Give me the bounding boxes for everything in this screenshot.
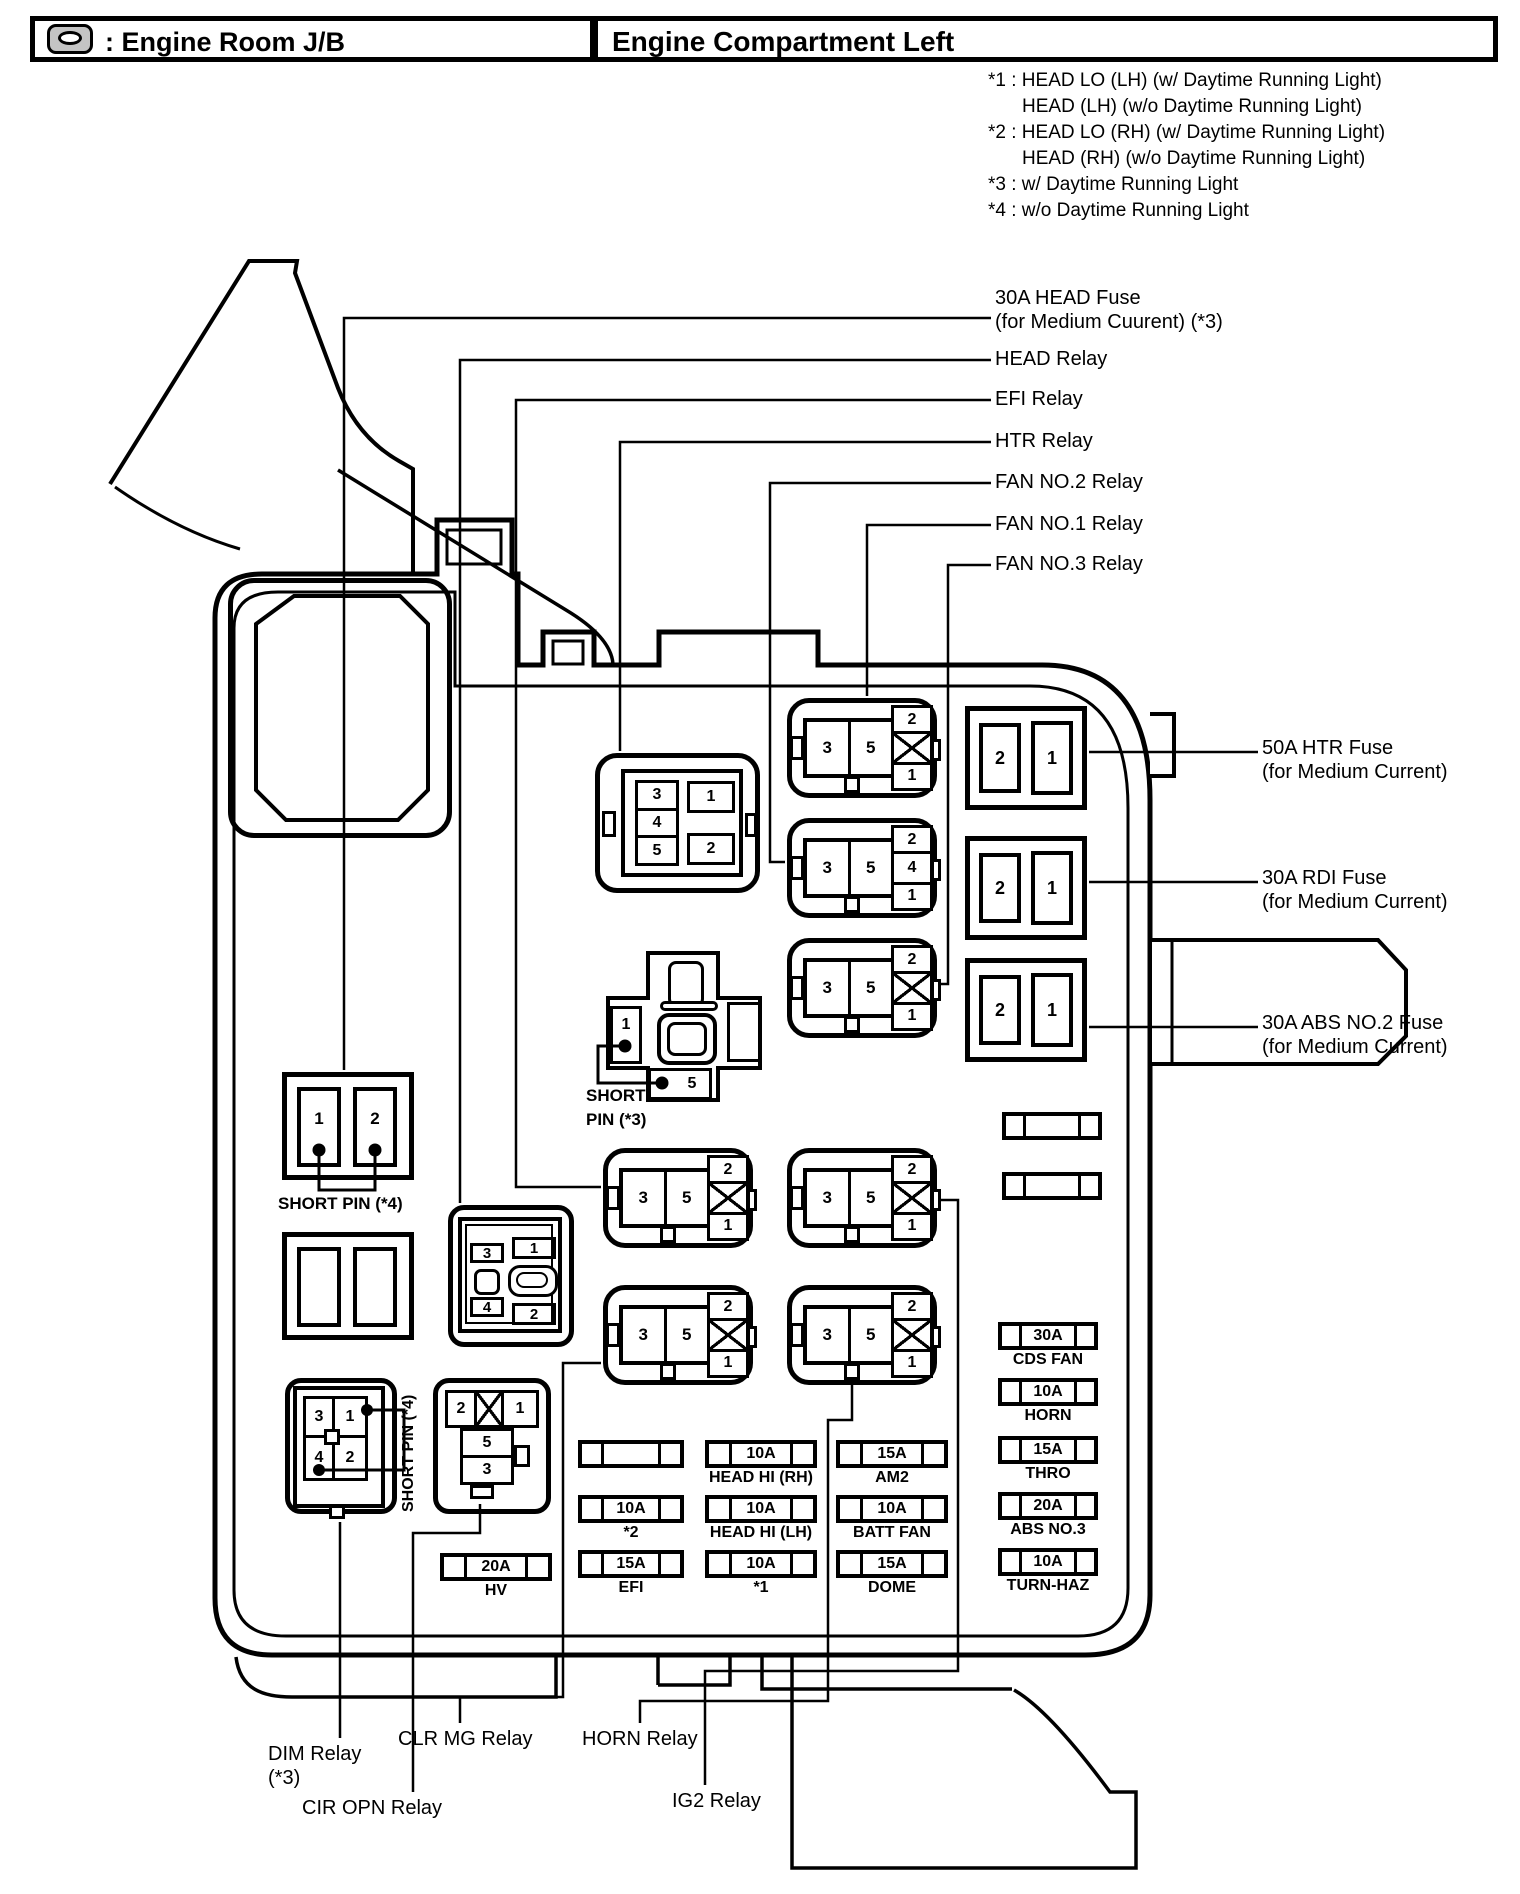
head-relay-pin-1: 1	[512, 1237, 556, 1259]
dim-relay-short-pin-label: SHORT PIN (*4)	[400, 1374, 420, 1512]
ig2-relay: 3521	[787, 1148, 937, 1248]
short-pin-4-block: 1 2	[282, 1072, 414, 1180]
hv-fuse-amp: 20A	[464, 1557, 529, 1577]
short-pin-3-center-inner	[667, 1022, 707, 1056]
horn-relay-pin-5: 5	[848, 1309, 892, 1361]
head-relay-callout-label: HEAD Relay	[995, 347, 1107, 371]
blank-strip-lower-cap-right	[1081, 1176, 1098, 1196]
ig2-relay-callout-label: IG2 Relay	[672, 1789, 761, 1813]
batt-fan-fuse: 10A	[836, 1495, 948, 1523]
htr-relay-pin-2: 2	[687, 833, 735, 865]
star1-fuse-label: *1	[691, 1579, 831, 1597]
page-title: Engine Compartment Left	[612, 26, 954, 58]
htr-relay-plate: 3 4 5 1 2	[621, 769, 743, 877]
horn-fuse-amp: 10A	[1019, 1382, 1076, 1402]
diagram-line-art	[0, 0, 1520, 1894]
cir-opn-relay-callout-label-line: CIR OPN Relay	[302, 1796, 442, 1820]
blank-fuse-a	[578, 1440, 684, 1468]
fan-no1-relay-pin-5: 5	[848, 722, 892, 774]
bottom-left-foot	[236, 1657, 556, 1697]
htr-relay-right-tab	[745, 813, 757, 837]
cir-opn-relay-right-tab	[514, 1445, 530, 1467]
thro-fuse-cap-left	[1002, 1440, 1019, 1460]
short-pin-3-cell-1: 1	[610, 1006, 642, 1064]
bottom-right-bracket	[792, 1657, 1136, 1868]
am2-fuse-label: AM2	[822, 1469, 962, 1487]
ig2-relay-bottom-tab	[844, 1226, 860, 1243]
horn-relay-pin-plate: 35	[803, 1305, 895, 1365]
dim-relay-callout-label: DIM Relay(*3)	[268, 1742, 361, 1790]
clr-mg-relay-right-tab	[747, 1326, 757, 1348]
ig2-relay-pin-1: 1	[894, 1212, 930, 1238]
fan-no2-relay-pin-5: 5	[848, 842, 892, 894]
fan-no2-relay-pin-plate: 35	[803, 838, 895, 898]
thro-fuse-cap-right	[1077, 1440, 1094, 1460]
fan-no2-relay-right-tab	[931, 859, 941, 881]
cir-opn-relay-x-cell	[474, 1390, 504, 1428]
top-left-bracket-inner-curve	[115, 487, 240, 549]
head-fuse-30a-callout-label: 30A HEAD Fuse(for Medium Cuurent) (*3)	[995, 286, 1223, 334]
header-legend-box: : Engine Room J/B	[30, 16, 595, 62]
efi-relay-pin-plate: 35	[619, 1168, 711, 1228]
fan-no1-relay-left-tab	[790, 736, 804, 760]
rdi-30a-fuse: 21	[965, 836, 1087, 940]
header-left-title: : Engine Room J/B	[105, 27, 345, 58]
fan-no1-relay-callout-line	[867, 525, 991, 696]
fan-no2-relay-callout-label: FAN NO.2 Relay	[995, 470, 1143, 494]
fan-no1-relay-right-tab	[931, 739, 941, 761]
htr-relay-callout-label: HTR Relay	[995, 429, 1093, 453]
footnote-1a: *1 : HEAD LO (LH) (w/ Daytime Running Li…	[988, 70, 1382, 92]
hv-fuse-cap-right	[528, 1557, 548, 1577]
efi-fuse-label: EFI	[564, 1579, 698, 1597]
turn-haz-fuse-cap-left	[1002, 1552, 1019, 1572]
short-pin-3-label-line1: SHORT	[586, 1086, 646, 1106]
turn-haz-fuse-amp: 10A	[1019, 1552, 1076, 1572]
short-pin-3-cell-5: 5	[648, 1068, 712, 1100]
efi-relay-left-tab	[606, 1186, 620, 1210]
efi-relay-pin-2: 2	[710, 1158, 746, 1181]
ig2-relay-right-tab	[931, 1189, 941, 1211]
dome-fuse-amp: 15A	[860, 1554, 925, 1574]
blank-fuse-a-amp	[601, 1444, 662, 1464]
dome-fuse: 15A	[836, 1550, 948, 1578]
fan-no2-relay: 35241	[787, 818, 937, 918]
htr-relay-pin-4: 4	[638, 808, 676, 836]
clr-mg-relay-callout-label-line: CLR MG Relay	[398, 1727, 532, 1751]
abs-no3-fuse-label: ABS NO.3	[984, 1521, 1112, 1539]
abs-no2-30a-fuse: 21	[965, 958, 1087, 1062]
fan-no2-relay-pin-1: 1	[894, 882, 930, 908]
ig2-relay-pin-3: 3	[807, 1172, 848, 1224]
empty-fuse-cell	[353, 1247, 397, 1327]
horn-relay-pin-3: 3	[807, 1309, 848, 1361]
fan-no3-relay-x-cell	[894, 971, 930, 1001]
short-pin-3-center	[657, 1013, 717, 1065]
efi-relay-pin-5: 5	[664, 1172, 708, 1224]
star1-fuse-cap-right	[793, 1554, 813, 1574]
fan-no1-relay-pin-stack: 21	[891, 705, 933, 791]
short-pin-4-cell-2: 2	[353, 1087, 397, 1167]
clr-mg-relay-left-tab	[606, 1323, 620, 1347]
footnote-3: *3 : w/ Daytime Running Light	[988, 174, 1238, 196]
horn-relay-left-tab	[790, 1323, 804, 1347]
head-hi-lh-fuse-cap-right	[793, 1499, 813, 1519]
cds-fan-fuse-amp: 30A	[1019, 1326, 1076, 1346]
efi-relay-x-cell	[710, 1181, 746, 1211]
fan-no2-relay-bottom-tab	[844, 896, 860, 913]
fan-no3-relay-pin-1: 1	[894, 1002, 930, 1028]
head-relay-pin-2: 2	[512, 1303, 556, 1325]
head-hi-lh-fuse-amp: 10A	[729, 1499, 794, 1519]
horn-fuse-cap-left	[1002, 1382, 1019, 1402]
ig2-relay-left-tab	[790, 1186, 804, 1210]
rdi-fuse-30a-callout-label-line: (for Medium Current)	[1262, 890, 1448, 914]
star2-fuse-cap-left	[582, 1499, 601, 1519]
clr-mg-relay-pin-1: 1	[710, 1349, 746, 1375]
footnote-1b: HEAD (LH) (w/o Daytime Running Light)	[1022, 96, 1362, 118]
htr-fuse-50a-callout-label-line: 50A HTR Fuse	[1262, 736, 1448, 760]
abs-no3-fuse-cap-left	[1002, 1496, 1019, 1516]
blank-fuse-a-cap-left	[582, 1444, 601, 1464]
efi-relay-pin-1: 1	[710, 1212, 746, 1238]
clr-mg-relay-pin-stack: 21	[707, 1292, 749, 1378]
blank-strip-upper	[1002, 1112, 1102, 1140]
am2-fuse-cap-left	[840, 1444, 860, 1464]
engine-room-jb-icon	[47, 24, 93, 54]
short-pin-3-label-line2: PIN (*3)	[586, 1110, 646, 1130]
head-relay-pin-3: 3	[470, 1243, 504, 1263]
efi-relay-pin-3: 3	[623, 1172, 664, 1224]
abs-no3-fuse: 20A	[998, 1492, 1098, 1520]
clr-mg-relay-pin-3: 3	[623, 1309, 664, 1361]
star2-fuse-label: *2	[564, 1524, 698, 1542]
head-hi-rh-fuse: 10A	[705, 1440, 817, 1468]
fan-no3-relay: 3521	[787, 938, 937, 1038]
thro-fuse-label: THRO	[984, 1465, 1112, 1483]
fan-no3-relay-pin-2: 2	[894, 948, 930, 971]
fan-no1-relay: 3521	[787, 698, 937, 798]
clr-mg-relay: 3521	[603, 1285, 753, 1385]
fan-no2-relay-pin-2: 2	[894, 828, 930, 851]
htr-relay-pin-3: 3	[638, 783, 676, 808]
fan-no2-relay-callout-label-line: FAN NO.2 Relay	[995, 470, 1143, 494]
hv-fuse-label: HV	[426, 1582, 566, 1600]
turn-haz-fuse-label: TURN-HAZ	[984, 1577, 1112, 1595]
footnote-2b: HEAD (RH) (w/o Daytime Running Light)	[1022, 148, 1365, 170]
htr-relay-pin-1: 1	[687, 781, 735, 813]
dim-relay-bottom-tab	[329, 1505, 345, 1519]
clr-mg-relay-callout-label: CLR MG Relay	[398, 1727, 532, 1751]
horn-fuse-cap-right	[1077, 1382, 1094, 1402]
fan-no2-relay-pin-4: 4	[894, 851, 930, 881]
fan-no1-relay-pin-2: 2	[894, 708, 930, 731]
horn-fuse: 10A	[998, 1378, 1098, 1406]
blank-fuse-a-cap-right	[661, 1444, 680, 1464]
fan-no1-relay-pin-plate: 35	[803, 718, 895, 778]
bottom-tab-outline	[658, 1657, 730, 1685]
fan-no1-relay-callout-label: FAN NO.1 Relay	[995, 512, 1143, 536]
htr-50a-fuse: 21	[965, 706, 1087, 810]
fan-no2-relay-left-tab	[790, 856, 804, 880]
htr-fuse-50a-callout-label-line: (for Medium Current)	[1262, 760, 1448, 784]
horn-relay-x-cell	[894, 1318, 930, 1348]
fan-no2-relay-pin-stack: 241	[891, 825, 933, 911]
head-hi-rh-fuse-cap-left	[709, 1444, 729, 1464]
head-relay: 3 1 4 2	[448, 1205, 574, 1347]
head-relay-round-slot	[474, 1269, 500, 1295]
callout-lines-layer	[0, 0, 1520, 1894]
blank-strip-upper-cap-left	[1006, 1116, 1023, 1136]
cds-fan-fuse: 30A	[998, 1322, 1098, 1350]
star1-fuse-cap-left	[709, 1554, 729, 1574]
clr-mg-relay-bottom-tab	[660, 1363, 676, 1380]
fan-no3-relay-right-tab	[931, 979, 941, 1001]
head-fuse-30a-callout-label-line: (for Medium Cuurent) (*3)	[995, 310, 1223, 334]
efi-fuse-cap-right	[661, 1554, 680, 1574]
top-tab-inner	[447, 530, 501, 564]
ig2-relay-pin-plate: 35	[803, 1168, 895, 1228]
short-pin-4-cell-1: 1	[297, 1087, 341, 1167]
fan-no3-relay-pin-plate: 35	[803, 958, 895, 1018]
head-hi-lh-fuse-label: HEAD HI (LH)	[691, 1524, 831, 1542]
htr-relay: 3 4 5 1 2	[595, 753, 760, 893]
hv-fuse: 20A	[440, 1553, 552, 1581]
cds-fan-fuse-cap-left	[1002, 1326, 1019, 1346]
ig2-relay-pin-stack: 21	[891, 1155, 933, 1241]
am2-fuse-cap-right	[924, 1444, 944, 1464]
bottom-step-outline	[762, 1657, 1012, 1689]
head-hi-rh-fuse-amp: 10A	[729, 1444, 794, 1464]
head-relay-callout-label-line: HEAD Relay	[995, 347, 1107, 371]
ig2-relay-x-cell	[894, 1181, 930, 1211]
dim-relay: 3 1 4 2	[285, 1378, 397, 1514]
dim-relay-center-key	[324, 1429, 340, 1445]
batt-fan-fuse-cap-left	[840, 1499, 860, 1519]
htr-50a-fuse-cell-2: 2	[979, 723, 1021, 793]
cir-opn-relay-pin-5: 5	[460, 1428, 514, 1458]
fuse-box-diagram-page: : Engine Room J/B Engine Compartment Lef…	[0, 0, 1520, 1894]
turn-haz-fuse: 10A	[998, 1548, 1098, 1576]
horn-relay-callout-label: HORN Relay	[582, 1727, 698, 1751]
fan-no1-relay-pin-3: 3	[807, 722, 848, 774]
turn-haz-fuse-cap-right	[1077, 1552, 1094, 1572]
ig2-relay-callout-label-line: IG2 Relay	[672, 1789, 761, 1813]
abs-no2-fuse-30a-callout-label-line: 30A ABS NO.2 Fuse	[1262, 1011, 1448, 1035]
empty-connector-socket	[228, 578, 452, 838]
dome-fuse-cap-right	[924, 1554, 944, 1574]
top-tab-small-inner	[553, 641, 583, 664]
short-pin-3-pin-1: 1	[613, 1009, 639, 1041]
blank-strip-lower-cap-left	[1006, 1176, 1023, 1196]
htr-50a-fuse-cell-1: 1	[1031, 721, 1073, 795]
dim-relay-callout-label-line: DIM Relay	[268, 1742, 361, 1766]
horn-relay: 3521	[787, 1285, 937, 1385]
engine-room-jb-icon-oval	[58, 31, 82, 45]
clr-mg-relay-pin-plate: 35	[619, 1305, 711, 1365]
horn-relay-bottom-tab	[844, 1363, 860, 1380]
abs-no2-30a-fuse-cell-2: 2	[979, 975, 1021, 1045]
efi-relay-pin-stack: 21	[707, 1155, 749, 1241]
htr-relay-pin-column: 3 4 5	[635, 780, 679, 866]
star2-fuse: 10A	[578, 1495, 684, 1523]
fan-no1-relay-pin-1: 1	[894, 762, 930, 788]
blank-strip-upper-amp	[1023, 1116, 1080, 1136]
fan-no3-relay-pin-5: 5	[848, 962, 892, 1014]
abs-no2-fuse-30a-callout-label-line: (for Medium Current)	[1262, 1035, 1448, 1059]
batt-fan-fuse-label: BATT FAN	[822, 1524, 962, 1542]
fan-no3-relay-callout-label: FAN NO.3 Relay	[995, 552, 1143, 576]
cir-opn-relay: 2 1 5 3	[433, 1378, 551, 1514]
fan-no1-relay-callout-label-line: FAN NO.1 Relay	[995, 512, 1143, 536]
horn-relay-pin-1: 1	[894, 1349, 930, 1375]
rdi-fuse-30a-callout-label: 30A RDI Fuse(for Medium Current)	[1262, 866, 1448, 914]
cir-opn-relay-pin-2: 2	[445, 1390, 477, 1428]
clr-mg-relay-pin-2: 2	[710, 1295, 746, 1318]
head-relay-wide-slot-inner	[516, 1272, 548, 1288]
fan-no3-relay-bottom-tab	[844, 1016, 860, 1033]
fan-no1-relay-x-cell	[894, 731, 930, 761]
horn-relay-right-tab	[931, 1326, 941, 1348]
abs-no2-30a-fuse-cell-1: 1	[1031, 973, 1073, 1047]
blank-strip-lower	[1002, 1172, 1102, 1200]
am2-fuse: 15A	[836, 1440, 948, 1468]
htr-relay-left-tab	[602, 811, 616, 837]
cir-opn-relay-callout-label: CIR OPN Relay	[302, 1796, 442, 1820]
head-hi-lh-fuse-cap-left	[709, 1499, 729, 1519]
blank-strip-upper-cap-right	[1081, 1116, 1098, 1136]
short-pin-3-pin-5: 5	[677, 1071, 707, 1097]
htr-fuse-50a-callout-label: 50A HTR Fuse(for Medium Current)	[1262, 736, 1448, 784]
footnote-4: *4 : w/o Daytime Running Light	[988, 200, 1249, 222]
dome-fuse-cap-left	[840, 1554, 860, 1574]
head-relay-wide-slot	[508, 1265, 558, 1297]
horn-relay-callout-label-line: HORN Relay	[582, 1727, 698, 1751]
thro-fuse: 15A	[998, 1436, 1098, 1464]
ig2-relay-pin-2: 2	[894, 1158, 930, 1181]
head-hi-rh-fuse-label: HEAD HI (RH)	[691, 1469, 831, 1487]
rdi-30a-fuse-cell-1: 1	[1031, 851, 1073, 925]
cir-opn-relay-bottom-tab	[470, 1485, 494, 1499]
head-relay-plate: 3 1 4 2	[458, 1217, 562, 1333]
efi-relay-right-tab	[747, 1189, 757, 1211]
abs-no3-fuse-amp: 20A	[1019, 1496, 1076, 1516]
fan-no3-relay-pin-stack: 21	[891, 945, 933, 1031]
head-hi-lh-fuse: 10A	[705, 1495, 817, 1523]
batt-fan-fuse-cap-right	[924, 1499, 944, 1519]
htr-relay-callout-label-line: HTR Relay	[995, 429, 1093, 453]
clr-mg-relay-x-cell	[710, 1318, 746, 1348]
short-pin-3-bar	[660, 1001, 718, 1011]
header-title-box: Engine Compartment Left	[593, 16, 1498, 62]
star1-fuse: 10A	[705, 1550, 817, 1578]
short-pin-3-cell-right	[727, 1002, 761, 1062]
abs-no2-fuse-30a-callout-label: 30A ABS NO.2 Fuse(for Medium Current)	[1262, 1011, 1448, 1059]
horn-relay-pin-2: 2	[894, 1295, 930, 1318]
short-pin-4-label: SHORT PIN (*4)	[278, 1194, 403, 1214]
head-relay-pin-4: 4	[470, 1297, 504, 1317]
fan-no3-relay-left-tab	[790, 976, 804, 1000]
star1-fuse-amp: 10A	[729, 1554, 794, 1574]
efi-relay-bottom-tab	[660, 1226, 676, 1243]
empty-fuse-block	[282, 1232, 414, 1340]
horn-fuse-label: HORN	[984, 1407, 1112, 1425]
empty-fuse-cell	[297, 1247, 341, 1327]
hv-fuse-cap-left	[444, 1557, 464, 1577]
efi-fuse-amp: 15A	[601, 1554, 662, 1574]
htr-relay-pin-5: 5	[638, 835, 676, 863]
fan-no3-relay-pin-3: 3	[807, 962, 848, 1014]
blank-strip-lower-amp	[1023, 1176, 1080, 1196]
cds-fan-fuse-cap-right	[1077, 1326, 1094, 1346]
dim-relay-callout-label-line: (*3)	[268, 1766, 361, 1790]
fan-no2-relay-callout-line	[770, 483, 991, 862]
cir-opn-relay-pin-3: 3	[460, 1455, 514, 1485]
cds-fan-fuse-label: CDS FAN	[984, 1351, 1112, 1369]
abs-no3-fuse-cap-right	[1077, 1496, 1094, 1516]
fan-no2-relay-pin-3: 3	[807, 842, 848, 894]
star2-fuse-cap-right	[661, 1499, 680, 1519]
head-hi-rh-fuse-cap-right	[793, 1444, 813, 1464]
rdi-30a-fuse-cell-2: 2	[979, 853, 1021, 923]
efi-relay: 3521	[603, 1148, 753, 1248]
am2-fuse-amp: 15A	[860, 1444, 925, 1464]
right-bump	[1150, 714, 1174, 776]
efi-relay-callout-label-line: EFI Relay	[995, 387, 1083, 411]
thro-fuse-amp: 15A	[1019, 1440, 1076, 1460]
fan-no3-relay-callout-label-line: FAN NO.3 Relay	[995, 552, 1143, 576]
fan-no1-relay-bottom-tab	[844, 776, 860, 793]
footnote-2a: *2 : HEAD LO (RH) (w/ Daytime Running Li…	[988, 122, 1385, 144]
head-fuse-30a-callout-label-line: 30A HEAD Fuse	[995, 286, 1223, 310]
batt-fan-fuse-amp: 10A	[860, 1499, 925, 1519]
cir-opn-relay-pin-1: 1	[501, 1390, 539, 1428]
top-left-bracket	[110, 261, 413, 573]
rdi-fuse-30a-callout-label-line: 30A RDI Fuse	[1262, 866, 1448, 890]
clr-mg-relay-pin-5: 5	[664, 1309, 708, 1361]
efi-relay-callout-label: EFI Relay	[995, 387, 1083, 411]
ig2-relay-pin-5: 5	[848, 1172, 892, 1224]
efi-fuse-cap-left	[582, 1554, 601, 1574]
efi-fuse: 15A	[578, 1550, 684, 1578]
dome-fuse-label: DOME	[822, 1579, 962, 1597]
star2-fuse-amp: 10A	[601, 1499, 662, 1519]
horn-relay-pin-stack: 21	[891, 1292, 933, 1378]
